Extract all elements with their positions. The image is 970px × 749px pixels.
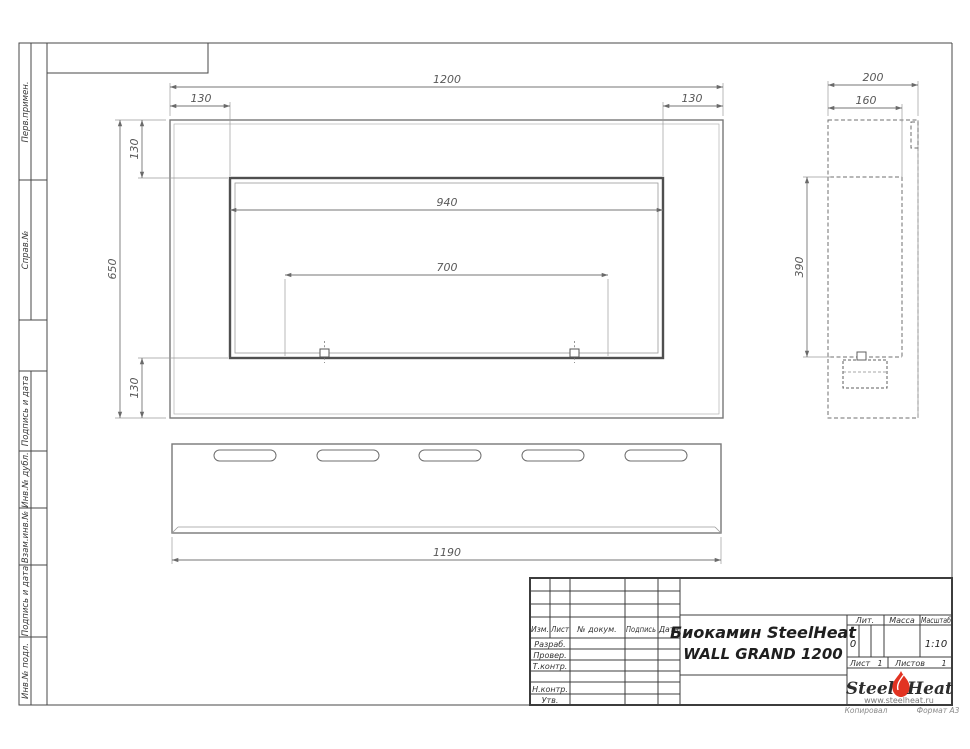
sidebar-label-perv-primen: Перв.примен. <box>21 81 31 142</box>
sidebar-label-inv-podl: Инв.№ подл. <box>21 643 31 699</box>
tb-product-title-line2: WALL GRAND 1200 <box>683 645 842 663</box>
dim-side-depth: 200 <box>863 71 884 84</box>
dim-front-margin-left: 130 <box>191 92 212 105</box>
tb-lit-value: 0 <box>850 639 856 650</box>
tb-col-izm: Изм. <box>531 625 549 634</box>
sidebar-label-vzam-inv: Взам.инв.№ <box>21 511 31 563</box>
dim-front-opening-width: 940 <box>437 196 458 209</box>
blueprint-canvas: Перв.примен. Справ.№ Подпись и дата Инв.… <box>0 0 970 749</box>
sheet-frame <box>19 43 952 705</box>
dim-front-width: 1200 <box>433 73 461 86</box>
drawing-sheet: Перв.примен. Справ.№ Подпись и дата Инв.… <box>0 0 970 749</box>
sidebar-stamp-columns: Перв.примен. Справ.№ Подпись и дата Инв.… <box>19 43 47 705</box>
sidebar-label-podpis-data-1: Подпись и дата <box>21 376 31 446</box>
tb-scale-value: 1:10 <box>925 639 947 650</box>
bottom-view <box>172 444 721 533</box>
burner-marks <box>320 341 579 363</box>
tb-sheet-value: 1 <box>877 659 882 668</box>
sidebar-label-inv-dubl: Инв.№ дубл. <box>21 452 31 507</box>
tb-scale-label: Масштаб <box>921 616 951 625</box>
sheet-footer-notes: Копировал Формат А3 <box>845 706 960 715</box>
dim-side-inner-depth: 160 <box>856 94 877 107</box>
sidebar-label-sprav-no: Справ.№ <box>21 231 31 270</box>
tb-col-list: Лист <box>550 625 569 634</box>
top-left-designation-box <box>47 43 208 73</box>
tb-role-approved: Утв. <box>542 696 559 705</box>
tb-sheets-label: Листов <box>894 659 925 668</box>
side-body-hidden-outline <box>828 120 918 418</box>
side-mount-notch <box>911 122 918 148</box>
footer-copied-by: Копировал <box>845 706 888 715</box>
title-block: Изм. Лист № докум. Подпись Дата Разраб. … <box>530 578 953 705</box>
tb-role-developed: Разраб. <box>534 640 565 649</box>
tb-col-doc: № докум. <box>576 625 616 634</box>
tb-lit-label: Лит. <box>855 616 874 625</box>
dim-front-margin-right: 130 <box>682 92 703 105</box>
tb-role-checked: Провер. <box>533 651 566 660</box>
tb-sheets-value: 1 <box>941 659 946 668</box>
dim-front-burner-span: 700 <box>437 261 458 274</box>
dim-front-top-offset: 130 <box>128 139 141 160</box>
tb-role-ncontrol: Н.контр. <box>532 685 568 694</box>
tb-sheet-label: Лист <box>849 659 871 668</box>
side-view-dimensions: 200 160 390 <box>793 71 918 357</box>
front-view-dimensions: 1200 130 130 650 130 130 940 700 <box>106 73 723 418</box>
footer-format: Формат А3 <box>917 706 960 715</box>
tb-role-tcontrol: Т.контр. <box>533 662 568 671</box>
dim-front-height: 650 <box>106 259 119 280</box>
bottom-view-dimensions: 1190 <box>172 537 721 564</box>
dim-front-bottom-offset: 130 <box>128 378 141 399</box>
bottom-vent-slots <box>214 450 687 461</box>
steelheat-logo: Steel Heat www.steelheat.ru <box>846 671 953 705</box>
tb-col-sign: Подпись <box>626 625 656 634</box>
side-view <box>828 120 918 418</box>
tb-product-title-line1: Биокамин SteelHeat <box>670 623 857 642</box>
logo-website: www.steelheat.ru <box>864 696 934 705</box>
bottom-body <box>172 444 721 533</box>
dim-side-opening-height: 390 <box>793 257 806 278</box>
sidebar-label-podpis-data-2: Подпись и дата <box>21 566 31 636</box>
tb-mass-label: Масса <box>889 616 915 625</box>
dim-bottom-length: 1190 <box>433 546 461 559</box>
